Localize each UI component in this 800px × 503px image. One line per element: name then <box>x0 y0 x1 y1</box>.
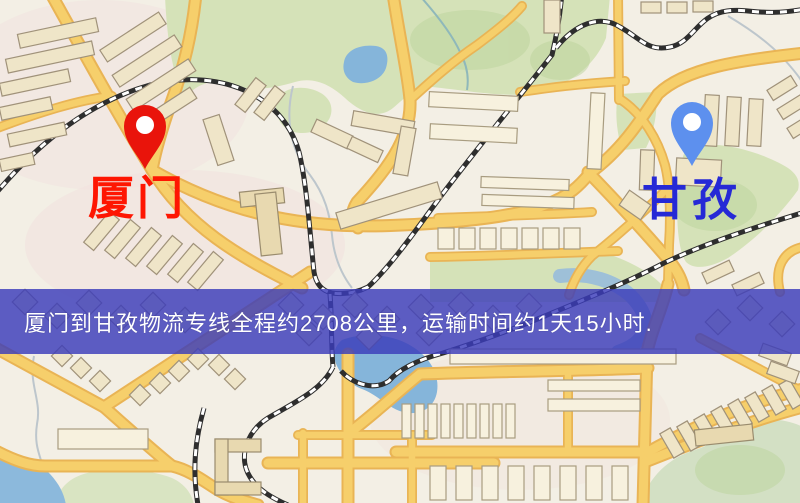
map-canvas[interactable] <box>0 0 800 503</box>
origin-pin[interactable] <box>121 103 169 171</box>
route-banner: 厦门到甘孜物流专线全程约2708公里，运输时间约1天15小时. <box>0 289 800 354</box>
destination-pin[interactable] <box>668 100 716 168</box>
destination-label: 甘孜 <box>642 177 742 222</box>
origin-label: 厦门 <box>88 175 186 221</box>
logistics-route-map: 厦门 甘孜 厦门到甘孜物流专线全程约2708公里，运输时间约1天15小时. <box>0 0 800 503</box>
route-banner-text: 厦门到甘孜物流专线全程约2708公里，运输时间约1天15小时. <box>24 306 653 338</box>
